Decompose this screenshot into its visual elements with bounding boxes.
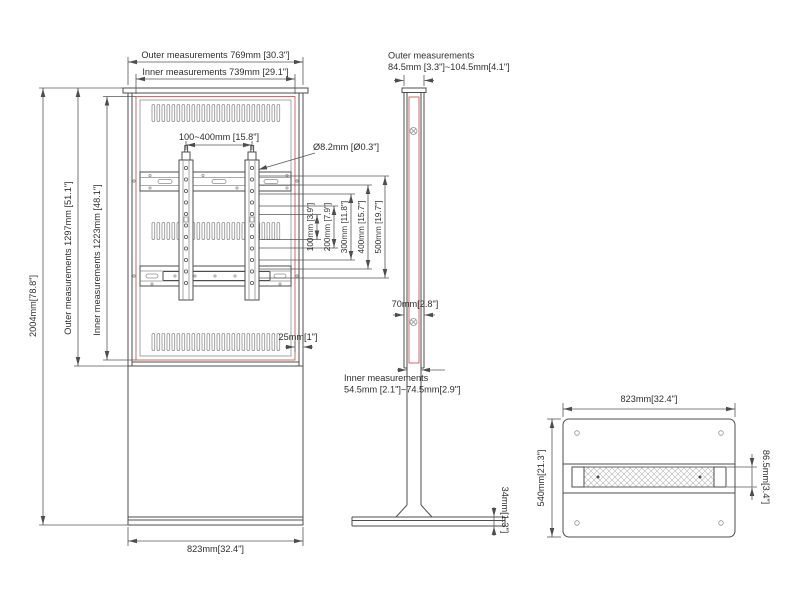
bracket-tab-right	[248, 152, 256, 160]
dim-bezel-label: 25mm[1"]	[278, 332, 317, 342]
side-inner-measurements-label: Inner measurements	[344, 373, 429, 383]
side-base	[352, 505, 505, 526]
side-inner-measurements-value: 54.5mm [2.1"]~74.5mm[2.9"]	[344, 385, 461, 395]
vesa-height-300-label: 300mm [11.8"]	[340, 201, 349, 253]
strip-holes-left	[182, 163, 190, 289]
cabinet-body	[128, 93, 303, 525]
side-outer-measurements-value: 84.5mm [3.3"]~104.5mm[4.1"]	[388, 62, 510, 72]
column-end-cap-left	[572, 467, 584, 487]
front-cabinet	[123, 88, 308, 525]
dim-hole-diameter-label: Ø8.2mm [Ø0.3"]	[313, 142, 379, 152]
side-column-width-label: 70mm[2.8"]	[392, 299, 439, 309]
top-width-label: 823mm[32.4"]	[621, 394, 678, 404]
vent-row-bottom	[151, 333, 281, 351]
dim-inner-width-label: Inner measurements 739mm [29.1"]	[142, 67, 288, 77]
dim-outer-height-label: Outer measurements 1297mm [51.1"]	[63, 181, 73, 334]
side-outer-measurements-label: Outer measurements	[388, 51, 475, 61]
vesa-height-500-label: 500mm [19.7"]	[374, 201, 383, 254]
vesa-height-200-label: 200mm [7.9"]	[323, 203, 332, 251]
vent-row-top	[151, 104, 281, 122]
plate-hole	[719, 521, 724, 526]
top-column-depth-label: 86.5mm[3.4"]	[761, 450, 771, 504]
plate-hole	[575, 521, 580, 526]
dim-inner-height-label: Inner measurements 1223mm [48.1"]	[92, 184, 102, 335]
dim-vesa-width-label: 100~400mm [15.8"]	[179, 132, 259, 142]
column-cross-section	[572, 467, 726, 487]
vesa-height-400-label: 400mm [15.7"]	[357, 201, 366, 254]
top-rail	[140, 172, 291, 191]
hole-leader-line	[259, 153, 315, 170]
top-depth-label: 540mm[21.3"]	[536, 450, 546, 507]
side-base-height-label: 34mm[1.3"]	[500, 487, 510, 534]
dim-total-height-label: 2004mm[78.8"]	[28, 275, 38, 337]
weld-mark-bottom	[410, 319, 417, 326]
dim-base-width-label: 823mm[32.4"]	[187, 544, 244, 554]
dim-outer-width-label: Outer measurements 769mm [30.3"]	[141, 50, 289, 60]
vent-row-middle	[151, 222, 281, 240]
side-column	[402, 88, 426, 505]
side-top-cap	[402, 88, 426, 93]
plate-hole	[575, 431, 580, 436]
weld-mark-top	[410, 128, 417, 135]
cabinet-top-cap	[123, 88, 308, 93]
top-column-section	[572, 467, 726, 487]
bracket-tab-left	[182, 152, 190, 160]
column-end-cap-right	[714, 467, 726, 487]
plate-hole	[719, 431, 724, 436]
vesa-height-100-label: 100mm [3.9"]	[306, 203, 315, 251]
strip-holes-right	[248, 163, 256, 289]
kiosk-technical-drawing: Outer measurements 769mm [30.3"] Inner m…	[0, 0, 800, 600]
drawing-canvas: Outer measurements 769mm [30.3"] Inner m…	[0, 0, 800, 600]
top-view	[547, 403, 757, 537]
